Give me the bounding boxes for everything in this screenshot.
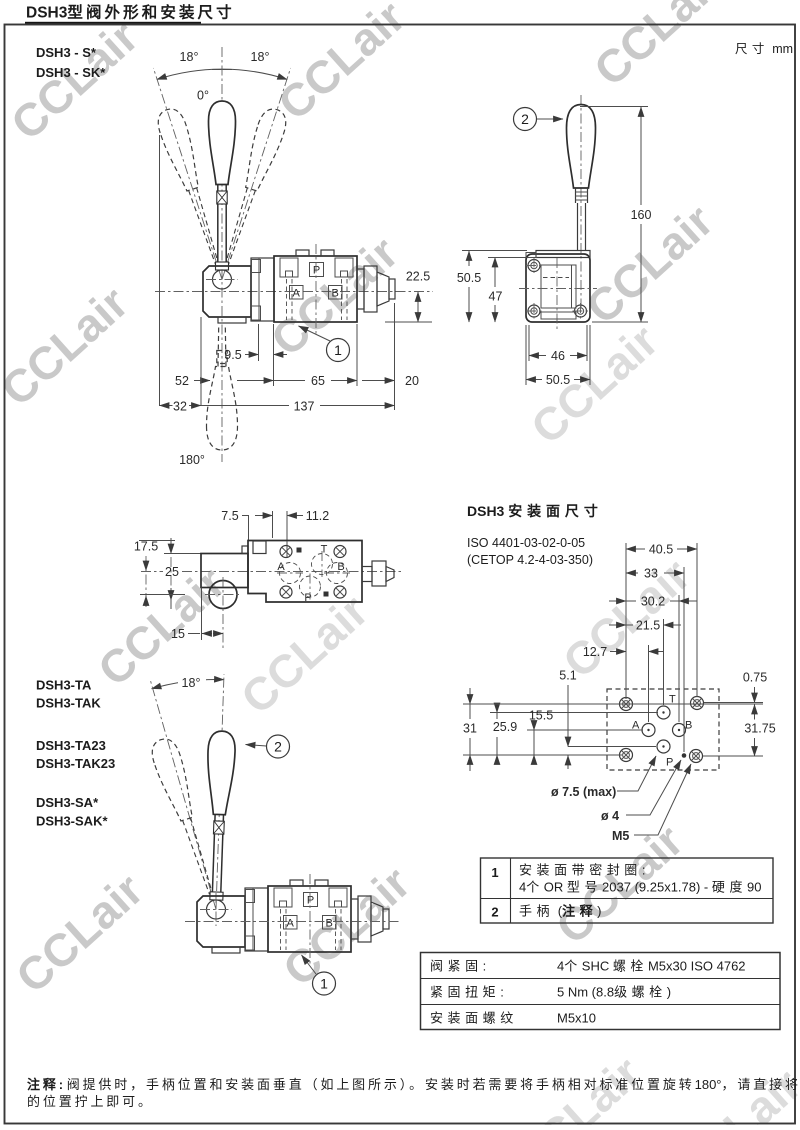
svg-text:DSH3 - SK*: DSH3 - SK* [36, 65, 106, 80]
svg-text:1: 1 [491, 865, 498, 880]
svg-text:4个OR 型号2037 (9.25x1.78) - 硬度90: 4个OR 型号2037 (9.25x1.78) - 硬度90 [519, 880, 761, 895]
svg-text:阀紧固:: 阀紧固: [430, 959, 486, 974]
svg-text:CCLair: CCLair [273, 856, 420, 996]
svg-text:CCLair: CCLair [521, 314, 668, 454]
svg-text:M5: M5 [612, 829, 629, 843]
svg-text:32: 32 [173, 400, 187, 414]
svg-text:30.2: 30.2 [641, 595, 665, 609]
svg-text:DSH3 - S*: DSH3 - S* [36, 45, 97, 60]
svg-text:P: P [313, 265, 320, 277]
svg-text:25: 25 [165, 565, 179, 579]
svg-text:B: B [685, 720, 692, 732]
svg-text:52: 52 [175, 374, 189, 388]
svg-text:M5x10: M5x10 [557, 1011, 596, 1026]
svg-text:18°: 18° [180, 50, 199, 64]
svg-text:DSH3 安装面尺寸: DSH3 安装面尺寸 [467, 503, 603, 519]
svg-text:47: 47 [489, 290, 503, 304]
svg-text:160: 160 [631, 208, 652, 222]
svg-text:0°: 0° [197, 89, 209, 103]
svg-text:40.5: 40.5 [649, 543, 673, 557]
svg-text:CCLair: CCLair [268, 0, 415, 130]
svg-text:4个SHC 螺栓M5x30 ISO 4762: 4个SHC 螺栓M5x30 ISO 4762 [557, 959, 746, 974]
svg-text:25.9: 25.9 [493, 720, 517, 734]
svg-text:137: 137 [294, 400, 315, 414]
svg-text:P: P [666, 757, 673, 769]
svg-text:1: 1 [320, 976, 328, 992]
svg-text:ø 7.5 (max): ø 7.5 (max) [551, 785, 616, 799]
svg-text:15.5: 15.5 [529, 709, 553, 723]
svg-text:DSH3-TA23: DSH3-TA23 [36, 738, 106, 753]
svg-text:50.5: 50.5 [546, 373, 570, 387]
svg-text:手柄 (注释): 手柄 (注释) [519, 904, 602, 919]
svg-text:20: 20 [405, 374, 419, 388]
svg-text:7.5: 7.5 [221, 509, 238, 523]
svg-text:50.5: 50.5 [457, 271, 481, 285]
svg-text:尺寸 mm: 尺寸 mm [735, 42, 793, 56]
svg-text:安装面螺纹: 安装面螺纹 [430, 1011, 518, 1026]
svg-text:31: 31 [463, 722, 477, 736]
svg-text:65: 65 [311, 374, 325, 388]
svg-text:31.75: 31.75 [744, 722, 775, 736]
svg-text:CCLair: CCLair [88, 556, 235, 696]
svg-text:22.5: 22.5 [406, 270, 430, 284]
svg-text:17.5: 17.5 [134, 540, 158, 554]
svg-text:5.1: 5.1 [559, 669, 576, 683]
svg-text:ISO 4401-03-02-0-05: ISO 4401-03-02-0-05 [467, 536, 585, 550]
svg-text:DSH3型阀外形和安装尺寸: DSH3型阀外形和安装尺寸 [26, 3, 235, 22]
svg-text:安装面带密封圈:: 安装面带密封圈: [519, 863, 645, 878]
svg-text:(CETOP 4.2-4-03-350): (CETOP 4.2-4-03-350) [467, 553, 593, 567]
svg-text:CCLair: CCLair [0, 276, 138, 416]
svg-text:180°: 180° [179, 453, 205, 467]
svg-text:33: 33 [644, 567, 658, 581]
svg-text:12.7: 12.7 [583, 645, 607, 659]
svg-text:18°: 18° [182, 676, 201, 690]
svg-text:P: P [304, 592, 311, 604]
svg-text:2: 2 [491, 905, 498, 920]
svg-text:9.5: 9.5 [224, 348, 241, 362]
svg-text:0.75: 0.75 [743, 671, 767, 685]
svg-text:B: B [332, 288, 339, 300]
svg-text:CCLair: CCLair [6, 863, 153, 1003]
svg-text:注释: 阀提供时，手柄位置和安装面垂直（如上图所示）。安装时: 注释: 阀提供时，手柄位置和安装面垂直（如上图所示）。安装时若需要将手柄相对标准… [27, 1077, 800, 1092]
svg-text:紧固扭矩:: 紧固扭矩: [430, 985, 504, 1000]
svg-text:DSH3-SA*: DSH3-SA* [36, 795, 99, 810]
svg-text:B: B [337, 561, 344, 573]
svg-text:21.5: 21.5 [636, 619, 660, 633]
svg-text:DSH3-SAK*: DSH3-SAK* [36, 814, 108, 829]
svg-text:的位置拧上即可。: 的位置拧上即可。 [27, 1094, 154, 1109]
svg-text:18°: 18° [251, 50, 270, 64]
svg-text:11.2: 11.2 [306, 509, 329, 523]
svg-text:CCLair: CCLair [1, 10, 148, 150]
svg-text:CCLair: CCLair [584, 0, 731, 96]
svg-text:1: 1 [334, 342, 342, 358]
svg-text:5 Nm (8.8级螺栓): 5 Nm (8.8级螺栓) [557, 985, 671, 1000]
svg-text:A: A [293, 288, 301, 300]
svg-text:2: 2 [521, 111, 529, 127]
svg-text:15: 15 [171, 627, 185, 641]
svg-text:2: 2 [274, 739, 282, 755]
svg-text:DSH3-TA: DSH3-TA [36, 678, 92, 693]
svg-text:DSH3-TAK: DSH3-TAK [36, 696, 101, 711]
svg-text:DSH3-TAK23: DSH3-TAK23 [36, 756, 115, 771]
svg-text:CCLair: CCLair [231, 584, 378, 724]
svg-text:ø 4: ø 4 [601, 809, 619, 823]
svg-text:46: 46 [551, 349, 565, 363]
